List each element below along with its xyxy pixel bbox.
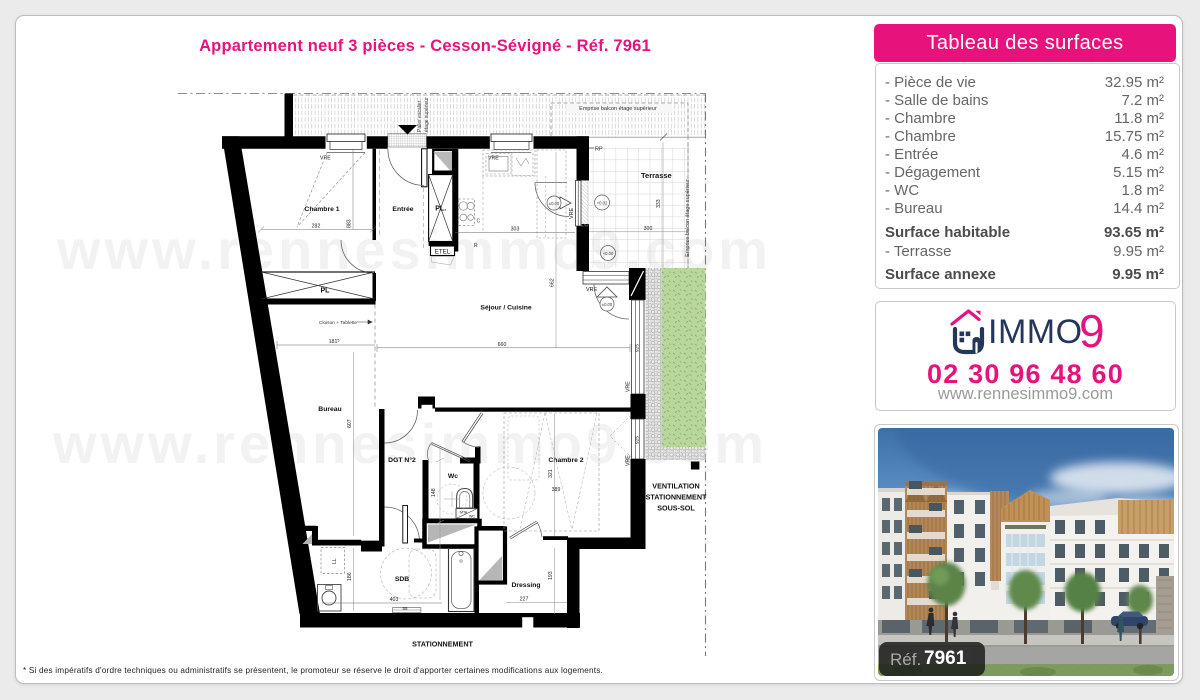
svg-text:925: 925: [635, 344, 641, 352]
svg-text:+0.02: +0.02: [597, 201, 608, 206]
svg-text:925: 925: [635, 436, 641, 444]
svg-text:9: 9: [1079, 305, 1105, 357]
svg-text:55: 55: [402, 606, 408, 611]
svg-text:Wc: Wc: [448, 473, 458, 480]
svg-text:R: R: [474, 243, 478, 249]
svg-text:ETEL: ETEL: [435, 249, 451, 256]
svg-text:+0.00: +0.00: [603, 251, 614, 256]
svg-text:VRE: VRE: [586, 287, 598, 293]
svg-text:Emprise balcon étage supérieur: Emprise balcon étage supérieur: [579, 106, 657, 112]
svg-text:Séjour / Cuisine: Séjour / Cuisine: [480, 305, 532, 312]
svg-text:883: 883: [347, 219, 353, 228]
svg-text:Dressing: Dressing: [511, 582, 540, 589]
svg-text:662: 662: [550, 278, 556, 287]
svg-text:SOUS-SOL: SOUS-SOL: [657, 504, 695, 513]
svg-text:660: 660: [498, 342, 507, 348]
svg-text:DGT N°2: DGT N°2: [388, 456, 416, 464]
svg-text:389: 389: [552, 487, 561, 493]
svg-text:Chambre 1: Chambre 1: [304, 206, 339, 213]
svg-text:186: 186: [347, 572, 353, 581]
svg-text:±0.00: ±0.00: [549, 201, 560, 206]
svg-text:IMMO: IMMO: [988, 313, 1083, 351]
svg-text:333: 333: [656, 199, 662, 208]
svg-text:227: 227: [520, 597, 529, 603]
svg-text:±0.00: ±0.00: [602, 302, 613, 307]
svg-text:300: 300: [644, 226, 653, 232]
svg-text:PL.: PL.: [435, 206, 446, 213]
svg-text:282: 282: [312, 224, 321, 230]
svg-text:303: 303: [511, 227, 520, 233]
svg-text:étage supérieur: étage supérieur: [424, 97, 430, 132]
svg-text:WC: WC: [469, 515, 475, 519]
svg-text:Palier escalier: Palier escalier: [417, 100, 423, 132]
svg-text:193: 193: [548, 571, 554, 580]
svg-text:RP: RP: [595, 147, 603, 153]
svg-text:C: C: [477, 219, 481, 225]
svg-text:VRE: VRE: [626, 381, 632, 392]
svg-text:Bureau: Bureau: [318, 406, 341, 413]
svg-text:STATIONNEMENT: STATIONNEMENT: [412, 640, 473, 649]
svg-text:Entrée: Entrée: [392, 206, 413, 213]
svg-text:Cloison + Tablette: Cloison + Tablette: [319, 320, 358, 326]
svg-text:VENTILATION: VENTILATION: [652, 482, 699, 491]
svg-text:PL: PL: [321, 288, 331, 295]
svg-text:VRE: VRE: [320, 156, 331, 162]
svg-text:148: 148: [431, 488, 437, 497]
svg-text:STATIONNEMENT: STATIONNEMENT: [646, 493, 707, 502]
svg-text:VRE: VRE: [569, 207, 575, 219]
svg-text:1815: 1815: [329, 338, 340, 345]
svg-text:LL: LL: [332, 558, 338, 564]
svg-text:Terrasse: Terrasse: [641, 171, 672, 180]
svg-text:403: 403: [390, 597, 399, 603]
svg-text:321: 321: [548, 469, 554, 478]
svg-text:Chambre 2: Chambre 2: [548, 457, 583, 464]
svg-text:SDB: SDB: [395, 576, 409, 583]
svg-text:607: 607: [347, 419, 353, 428]
